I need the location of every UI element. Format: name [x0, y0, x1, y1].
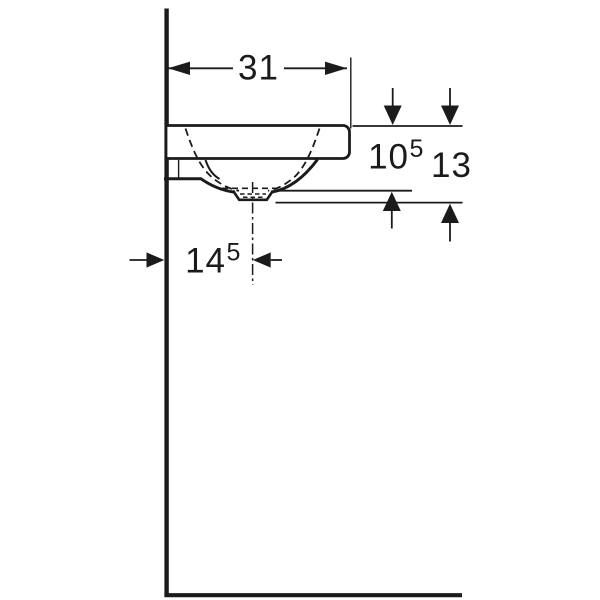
dimension-depth-to-bowl: 10 5 — [368, 88, 423, 229]
arrow-right-icon — [325, 62, 347, 75]
arrow-up-icon-1 — [383, 192, 401, 211]
arrow-left-icon-offset — [253, 252, 271, 267]
drawing-canvas: 31 10 5 13 14 5 — [0, 0, 600, 600]
technical-drawing: 31 10 5 13 14 5 — [0, 0, 600, 600]
arrow-up-icon-2 — [441, 204, 459, 223]
dimension-width: 31 — [168, 49, 347, 88]
dimension-drain-offset: 14 5 — [130, 239, 283, 281]
dimension-depth-to-bowl-superscript: 5 — [410, 135, 424, 163]
bowl-front-edge — [206, 160, 220, 179]
arrow-left-icon — [168, 62, 190, 75]
dimension-drain-offset-superscript: 5 — [227, 239, 241, 267]
arrow-down-icon-1 — [384, 106, 402, 126]
dimension-width-label: 31 — [238, 49, 279, 88]
dimension-depth-to-bowl-label: 10 — [368, 138, 409, 177]
dimension-depth-total-label: 13 — [431, 146, 472, 185]
arrow-right-icon-offset — [147, 252, 165, 267]
dimension-depth-total: 13 — [431, 88, 472, 242]
dimension-drain-offset-label: 14 — [185, 242, 226, 281]
basin-rim-profile — [166, 126, 350, 159]
bowl-underside-left — [164, 179, 235, 192]
arrow-down-icon-2 — [441, 106, 459, 126]
